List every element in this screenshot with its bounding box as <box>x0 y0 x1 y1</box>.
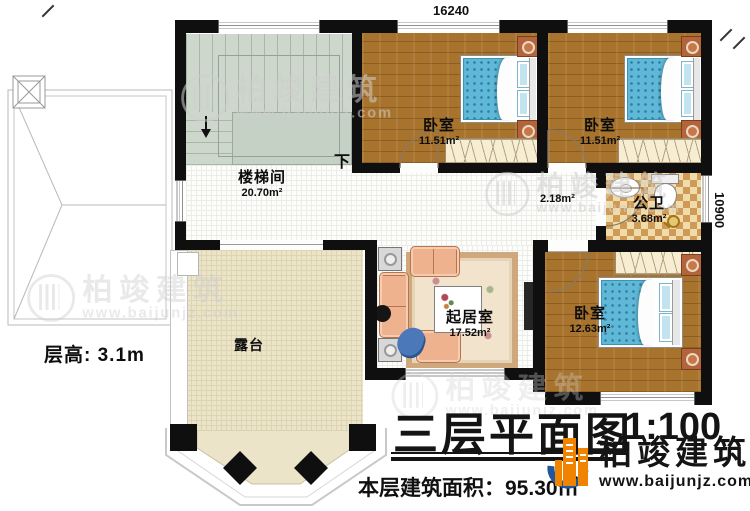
room-label-living: 起居室 17.52m² <box>432 310 508 339</box>
terrace-bay-floor <box>197 430 352 484</box>
door-gap-bedroom2 <box>548 163 586 173</box>
terrace-column-angled <box>223 451 257 485</box>
terrace-column <box>349 424 376 451</box>
window-top-stairwell <box>218 20 320 33</box>
brand-logo-icon <box>543 436 593 496</box>
window-left-stairwell <box>175 180 186 222</box>
nightstand <box>681 254 703 276</box>
terrace-left-railing <box>170 250 188 427</box>
dimension-top: 16240 <box>433 3 469 18</box>
terrace-pillar-base <box>177 252 199 276</box>
brand-name: 柏竣建筑 <box>599 436 750 469</box>
room-label-bedroom1: 卧室 11.51m² <box>400 118 478 147</box>
corridor-area-label: 2.18m² <box>540 193 575 205</box>
room-label-bathroom: 公卫 3.68m² <box>618 196 680 225</box>
brand-url: www.baijunjz.com、 <box>599 474 750 490</box>
door-gap-bedroom1 <box>400 163 438 173</box>
nightstand <box>517 36 539 57</box>
tv-icon <box>524 282 533 330</box>
wall-stair-bedroom1 <box>352 20 362 173</box>
wall-segment <box>352 163 400 173</box>
wall-segment <box>438 163 548 173</box>
terrace-opening <box>220 240 323 250</box>
terrace-column <box>170 424 197 451</box>
window-top-bedroom1 <box>397 20 500 33</box>
wall-segment <box>586 163 712 173</box>
dimension-tick <box>720 29 733 42</box>
wall-living-bottom <box>365 368 405 380</box>
watermark-logo-icon <box>27 274 75 322</box>
chimney-symbol <box>13 76 45 108</box>
dimension-tick <box>733 37 746 50</box>
window-bathroom <box>701 175 712 223</box>
wall-terrace-living <box>365 245 377 380</box>
wall-bedroom3-bottom <box>695 392 712 405</box>
floor-height-label: 层高: 3.1m <box>44 340 145 367</box>
window-top-bedroom2 <box>567 20 668 33</box>
terrace-column-angled <box>294 451 328 485</box>
door-gap-bedroom3 <box>548 240 588 252</box>
terrace-opening-line <box>220 244 323 245</box>
brand-logo: 柏竣建筑 www.baijunjz.com、 <box>543 436 750 496</box>
door-gap-bathroom <box>596 188 606 226</box>
window-living-bottom <box>405 368 505 380</box>
floor-plan-canvas: 16240 10900 楼梯间 20.70m² 下 卧室 11.51m² 卧室 … <box>0 0 750 511</box>
stair-inner-outline <box>218 55 340 157</box>
nightstand <box>681 348 703 370</box>
dimension-tick <box>42 5 55 18</box>
stair-arrow-stem <box>205 116 207 130</box>
terrace-floor <box>186 250 363 430</box>
bed-bedroom1 <box>460 55 539 123</box>
wall-living-bottom <box>505 368 545 380</box>
dimension-right: 10900 <box>712 192 727 228</box>
wall-bedroom1-bedroom2 <box>537 20 548 173</box>
sofa-top <box>410 246 460 277</box>
room-label-bedroom3: 卧室 12.63m² <box>552 306 628 335</box>
room-label-stairwell: 楼梯间 20.70m² <box>222 170 302 199</box>
wall-segment <box>175 240 220 250</box>
nightstand <box>681 36 703 57</box>
wall-bedroom3-top <box>588 240 712 252</box>
stair-down-arrow-icon <box>201 129 211 138</box>
room-label-terrace: 露台 <box>226 338 272 354</box>
bed-bedroom2 <box>624 55 703 123</box>
stair-direction-label: 下 <box>334 148 350 172</box>
wall-bathroom <box>596 173 606 188</box>
side-table <box>378 247 402 271</box>
room-label-bedroom2: 卧室 11.51m² <box>560 118 640 147</box>
